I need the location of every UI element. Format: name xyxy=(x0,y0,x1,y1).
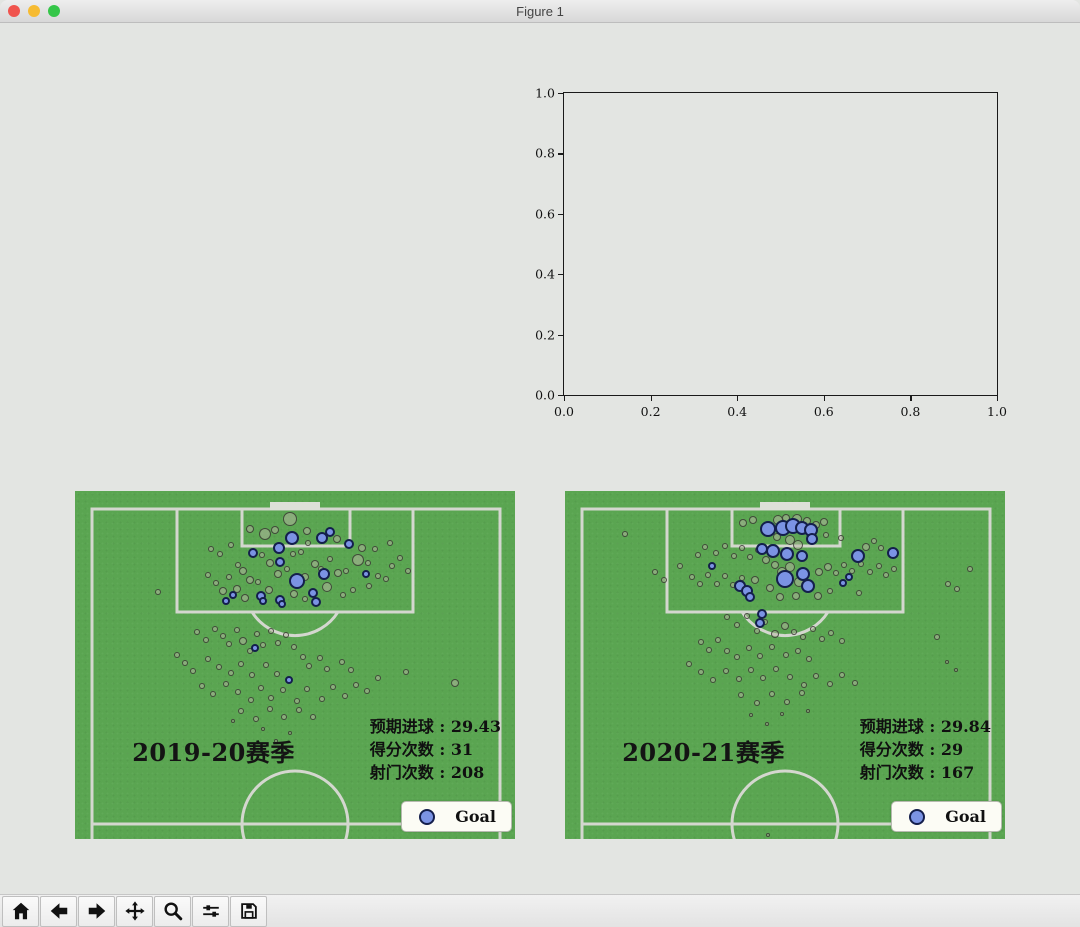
shot-dot-miss xyxy=(722,573,728,579)
shot-dot-miss xyxy=(389,563,395,569)
shot-dot-miss xyxy=(827,681,833,687)
shot-dot-miss xyxy=(254,631,260,637)
shot-dot-miss xyxy=(238,708,244,714)
shot-dot-miss xyxy=(220,633,226,639)
shot-dot-miss xyxy=(852,680,858,686)
shot-dot-miss xyxy=(799,690,805,696)
shot-dot-miss xyxy=(350,587,356,593)
shot-dot-miss xyxy=(871,538,877,544)
x-tick xyxy=(997,396,998,401)
y-tick xyxy=(558,214,563,215)
shot-dot-goal xyxy=(222,597,230,605)
shot-dot-miss xyxy=(736,676,742,682)
shot-dot-goal xyxy=(285,531,299,545)
shot-dot-miss xyxy=(283,512,297,526)
shot-dot-miss xyxy=(862,543,870,551)
shot-dot-goal xyxy=(708,562,716,570)
x-tick xyxy=(737,396,738,401)
stat-shots: 射门次数 : 167 xyxy=(860,761,991,784)
shot-dot-goal xyxy=(259,597,267,605)
shot-dot-miss xyxy=(340,592,346,598)
shot-dot-miss xyxy=(265,586,273,594)
shot-dot-miss xyxy=(199,683,205,689)
shot-dot-miss xyxy=(806,656,812,662)
shot-dot-miss xyxy=(281,714,287,720)
shot-dot-miss xyxy=(722,543,728,549)
stat-goals: 得分次数 : 29 xyxy=(860,738,991,761)
legend-label: Goal xyxy=(945,807,986,826)
shot-dot-miss xyxy=(876,563,882,569)
shot-dot-miss xyxy=(241,594,249,602)
shot-dot-miss xyxy=(383,576,389,582)
shot-dot-miss xyxy=(784,699,790,705)
shot-dot-miss xyxy=(793,540,803,550)
shot-dot-miss xyxy=(339,659,345,665)
y-tick-label: 0.0 xyxy=(535,388,555,403)
shot-dot-goal xyxy=(275,557,285,567)
shot-dot-miss xyxy=(839,672,845,678)
shot-dot-miss xyxy=(856,590,862,596)
shot-dot-miss xyxy=(698,669,704,675)
pan-button[interactable] xyxy=(116,896,153,927)
empty-axes: 0.00.20.40.60.81.00.00.20.40.60.81.0 xyxy=(563,92,998,396)
shot-dot-miss xyxy=(405,568,411,574)
shot-dot-miss xyxy=(731,553,737,559)
shot-dot-miss xyxy=(310,714,316,720)
shot-dot-miss xyxy=(806,709,810,713)
shot-dot-miss xyxy=(706,647,712,653)
shot-dot-miss xyxy=(235,689,241,695)
shot-dot-miss xyxy=(800,634,806,640)
x-tick-label: 0.2 xyxy=(641,404,661,419)
season-label: 2020-21赛季 xyxy=(622,733,785,768)
y-tick-label: 1.0 xyxy=(535,86,555,101)
x-tick xyxy=(651,396,652,401)
shot-dot-miss xyxy=(652,569,658,575)
shot-dot-miss xyxy=(791,629,797,635)
zoom-button[interactable] xyxy=(154,896,191,927)
x-tick-label: 1.0 xyxy=(987,404,1007,419)
shot-dot-miss xyxy=(217,551,223,557)
shot-dot-miss xyxy=(689,574,695,580)
shot-dot-miss xyxy=(751,576,759,584)
shot-dot-miss xyxy=(766,584,774,592)
shot-dot-miss xyxy=(833,570,839,576)
shot-dot-goal xyxy=(766,544,780,558)
shot-dot-miss xyxy=(155,589,161,595)
pan-icon xyxy=(124,900,146,922)
shot-dot-miss xyxy=(766,833,770,837)
shot-dot-miss xyxy=(231,719,235,723)
stats-block: 预期进球 : 29.43 得分次数 : 31 射门次数 : 208 xyxy=(370,715,501,785)
title-bar: Figure 1 xyxy=(0,0,1080,23)
shot-dot-miss xyxy=(304,686,310,692)
shot-dot-miss xyxy=(749,516,757,524)
y-tick-label: 0.8 xyxy=(535,146,555,161)
shot-dot-miss xyxy=(757,653,763,659)
shot-dot-miss xyxy=(686,661,692,667)
shot-dot-miss xyxy=(174,652,180,658)
shot-dot-miss xyxy=(739,519,747,527)
shot-dot-goal xyxy=(325,527,335,537)
shot-dot-goal xyxy=(796,550,808,562)
shot-dot-miss xyxy=(403,669,409,675)
forward-arrow-icon xyxy=(86,900,108,922)
shot-dot-miss xyxy=(748,667,754,673)
shot-dot-miss xyxy=(249,672,255,678)
shot-dot-goal xyxy=(273,542,285,554)
shot-dot-goal xyxy=(362,570,370,578)
shot-dot-miss xyxy=(746,645,752,651)
shot-dot-goal xyxy=(755,618,765,628)
shot-dot-miss xyxy=(776,593,784,601)
shot-dot-miss xyxy=(883,572,889,578)
shot-dot-miss xyxy=(867,569,873,575)
shot-dot-miss xyxy=(724,648,730,654)
shot-dot-goal xyxy=(289,573,305,589)
shot-dot-miss xyxy=(259,528,271,540)
shot-dot-miss xyxy=(364,688,370,694)
legend: Goal xyxy=(401,801,512,832)
shot-dot-miss xyxy=(372,546,378,552)
shot-dot-miss xyxy=(219,587,227,595)
shot-dot-goal xyxy=(285,676,293,684)
shot-dot-miss xyxy=(702,544,708,550)
shot-dot-miss xyxy=(228,670,234,676)
shot-dot-miss xyxy=(210,691,216,697)
shot-dot-goal xyxy=(851,549,865,563)
shot-dot-miss xyxy=(342,693,348,699)
shot-dot-miss xyxy=(710,677,716,683)
shot-dot-miss xyxy=(801,682,807,688)
shot-dot-miss xyxy=(945,660,949,664)
shot-dot-miss xyxy=(322,582,332,592)
shot-dot-miss xyxy=(358,544,366,552)
shot-dot-goal xyxy=(776,570,794,588)
shot-dot-miss xyxy=(253,716,259,722)
shot-dot-miss xyxy=(698,639,704,645)
shot-dot-miss xyxy=(366,583,372,589)
shot-dot-miss xyxy=(769,691,775,697)
shot-dot-miss xyxy=(724,614,730,620)
shot-dot-miss xyxy=(268,695,274,701)
shot-dot-miss xyxy=(213,580,219,586)
shot-dot-miss xyxy=(263,662,269,668)
shot-dot-miss xyxy=(352,554,364,566)
shot-dot-miss xyxy=(283,632,289,638)
shot-dot-miss xyxy=(348,667,354,673)
shot-dot-miss xyxy=(839,638,845,644)
save-button[interactable] xyxy=(230,896,267,927)
shot-dot-miss xyxy=(375,675,381,681)
shot-dot-miss xyxy=(291,644,297,650)
shot-dot-miss xyxy=(754,700,760,706)
shot-dot-miss xyxy=(205,572,211,578)
shot-dot-miss xyxy=(343,568,349,574)
magnifier-icon xyxy=(162,900,184,922)
shot-dot-miss xyxy=(274,671,280,677)
shot-dot-miss xyxy=(781,622,789,630)
shot-dot-miss xyxy=(715,637,721,643)
shot-dot-goal xyxy=(745,592,755,602)
save-icon xyxy=(238,900,260,922)
shot-dot-miss xyxy=(302,596,308,602)
shot-dot-miss xyxy=(268,628,274,634)
shot-dot-miss xyxy=(705,572,711,578)
shot-dot-miss xyxy=(223,681,229,687)
shot-dot-miss xyxy=(967,566,973,572)
shot-dot-miss xyxy=(787,674,793,680)
shot-dot-miss xyxy=(182,660,188,666)
shot-dot-miss xyxy=(330,684,336,690)
shot-dot-goal xyxy=(806,533,818,545)
shot-dot-goal xyxy=(229,591,237,599)
shot-dot-miss xyxy=(934,634,940,640)
shot-dot-miss xyxy=(723,668,729,674)
shot-dot-miss xyxy=(365,560,371,566)
shot-dot-goal xyxy=(251,644,259,652)
forward-button[interactable] xyxy=(78,896,115,927)
shot-dot-miss xyxy=(765,722,769,726)
shot-dot-miss xyxy=(813,673,819,679)
shot-dot-miss xyxy=(810,626,816,632)
shot-dot-miss xyxy=(216,664,222,670)
shot-dot-miss xyxy=(451,679,459,687)
window-title: Figure 1 xyxy=(0,4,1080,19)
x-tick xyxy=(910,396,911,401)
shot-dot-miss xyxy=(306,663,312,669)
shot-dot-miss xyxy=(838,535,844,541)
shot-dot-goal xyxy=(248,548,258,558)
pitch-axes-2020-21: 2020-21赛季 预期进球 : 29.84 得分次数 : 29 射门次数 : … xyxy=(565,491,1005,839)
y-tick-label: 0.2 xyxy=(535,327,555,342)
shot-dot-miss xyxy=(267,706,273,712)
shot-dot-miss xyxy=(275,640,281,646)
x-tick-label: 0.6 xyxy=(814,404,834,419)
shot-dot-miss xyxy=(261,727,265,731)
shot-dot-miss xyxy=(226,641,232,647)
shot-dot-miss xyxy=(792,592,800,600)
shot-dot-miss xyxy=(771,630,779,638)
shot-dot-miss xyxy=(305,540,311,546)
y-tick xyxy=(558,93,563,94)
stat-expected-goals: 预期进球 : 29.43 xyxy=(370,715,501,738)
shot-dot-miss xyxy=(280,687,286,693)
shot-dot-miss xyxy=(327,556,333,562)
shot-dot-miss xyxy=(819,636,825,642)
shot-dot-miss xyxy=(260,642,266,648)
x-tick-label: 0.4 xyxy=(727,404,747,419)
shot-dot-miss xyxy=(795,648,801,654)
sliders-icon xyxy=(200,900,222,922)
shot-dot-goal xyxy=(318,568,330,580)
x-tick xyxy=(824,396,825,401)
shot-dot-miss xyxy=(661,577,667,583)
shot-dot-miss xyxy=(397,555,403,561)
shot-dot-goal xyxy=(760,521,776,537)
shot-dot-miss xyxy=(841,562,847,568)
shot-dot-miss xyxy=(212,626,218,632)
figure-canvas[interactable]: 0.00.20.40.60.81.00.00.20.40.60.81.0 201… xyxy=(0,23,1080,894)
shot-dot-miss xyxy=(298,549,304,555)
shot-dot-miss xyxy=(754,628,760,634)
shot-dot-miss xyxy=(828,630,834,636)
shot-dot-miss xyxy=(284,566,290,572)
shot-dot-miss xyxy=(747,554,753,560)
y-tick xyxy=(558,335,563,336)
shot-dot-miss xyxy=(324,666,330,672)
shot-dot-miss xyxy=(319,696,325,702)
pitch-axes-2019-20: 2019-20赛季 预期进球 : 29.43 得分次数 : 31 射门次数 : … xyxy=(75,491,515,839)
legend-label: Goal xyxy=(455,807,496,826)
shot-dot-miss xyxy=(954,668,958,672)
shot-dot-miss xyxy=(891,566,897,572)
shot-dot-miss xyxy=(783,652,789,658)
shot-dot-miss xyxy=(820,518,828,526)
shot-dot-goal xyxy=(311,597,321,607)
x-tick-label: 0.8 xyxy=(900,404,920,419)
shot-dot-miss xyxy=(239,637,247,645)
shot-dot-miss xyxy=(190,668,196,674)
shot-dot-miss xyxy=(714,581,720,587)
shot-dot-goal xyxy=(801,579,815,593)
x-tick xyxy=(564,396,565,401)
shot-dot-miss xyxy=(255,579,261,585)
home-icon xyxy=(10,900,32,922)
shot-dot-miss xyxy=(734,622,740,628)
shot-dot-miss xyxy=(824,563,832,571)
shot-dot-miss xyxy=(228,542,234,548)
y-tick-label: 0.4 xyxy=(535,267,555,282)
stats-block: 预期进球 : 29.84 得分次数 : 29 射门次数 : 167 xyxy=(860,715,991,785)
shot-dot-miss xyxy=(827,588,833,594)
shot-dot-miss xyxy=(246,576,254,584)
shot-dot-miss xyxy=(238,661,244,667)
shot-dot-miss xyxy=(697,581,703,587)
stat-expected-goals: 预期进球 : 29.84 xyxy=(860,715,991,738)
shot-dot-miss xyxy=(194,629,200,635)
shot-dot-miss xyxy=(246,525,254,533)
shot-dot-miss xyxy=(734,654,740,660)
goal-marker-icon xyxy=(419,809,435,825)
shot-dot-miss xyxy=(248,697,254,703)
y-tick-label: 0.6 xyxy=(535,206,555,221)
shot-dot-miss xyxy=(815,568,823,576)
y-tick xyxy=(558,395,563,396)
shot-dot-miss xyxy=(677,563,683,569)
shot-dot-miss xyxy=(303,527,311,535)
shot-dot-miss xyxy=(203,637,209,643)
figure-window: Figure 1 0.00.20.40.60.81.00.00.20.40.60… xyxy=(0,0,1080,927)
shot-dot-miss xyxy=(226,574,232,580)
shot-dot-miss xyxy=(760,675,766,681)
shot-dot-miss xyxy=(375,573,381,579)
shot-dot-goal xyxy=(887,547,899,559)
season-label: 2019-20赛季 xyxy=(132,733,295,768)
shot-dot-miss xyxy=(713,550,719,556)
shot-dot-miss xyxy=(780,712,784,716)
shot-dot-goal xyxy=(780,547,794,561)
shot-dot-miss xyxy=(258,685,264,691)
shot-dot-miss xyxy=(387,540,393,546)
shot-dot-miss xyxy=(266,559,274,567)
legend: Goal xyxy=(891,801,1002,832)
shot-dot-miss xyxy=(823,532,829,538)
shot-dot-miss xyxy=(769,644,775,650)
shot-dot-miss xyxy=(695,552,701,558)
shot-dot-miss xyxy=(300,654,306,660)
shot-dot-miss xyxy=(334,569,342,577)
shot-dot-miss xyxy=(317,655,323,661)
shot-dot-goal xyxy=(845,573,853,581)
back-button[interactable] xyxy=(40,896,77,927)
stat-goals: 得分次数 : 31 xyxy=(370,738,501,761)
configure-subplots-button[interactable] xyxy=(192,896,229,927)
shot-dot-miss xyxy=(208,546,214,552)
shot-dot-miss xyxy=(239,567,247,575)
shot-dot-miss xyxy=(878,545,884,551)
shot-dot-miss xyxy=(333,535,341,543)
y-tick xyxy=(558,153,563,154)
goal-marker-icon xyxy=(909,809,925,825)
shot-dot-miss xyxy=(274,570,282,578)
shot-dot-miss xyxy=(205,656,211,662)
shot-dot-miss xyxy=(353,682,359,688)
stat-shots: 射门次数 : 208 xyxy=(370,761,501,784)
shot-dot-miss xyxy=(739,545,745,551)
shot-dot-miss xyxy=(234,627,240,633)
shot-dot-miss xyxy=(296,707,302,713)
shot-dot-miss xyxy=(290,551,296,557)
shot-dot-miss xyxy=(954,586,960,592)
shot-dot-miss xyxy=(738,692,744,698)
shots-layer-1 xyxy=(565,491,1005,839)
shot-dot-miss xyxy=(259,552,265,558)
shot-dot-goal xyxy=(344,539,354,549)
shot-dot-miss xyxy=(773,666,779,672)
home-button[interactable] xyxy=(2,896,39,927)
shot-dot-miss xyxy=(290,590,298,598)
matplotlib-toolbar xyxy=(0,894,1080,927)
shot-dot-miss xyxy=(749,713,753,717)
shots-layer-0 xyxy=(75,491,515,839)
shot-dot-miss xyxy=(945,581,951,587)
shot-dot-miss xyxy=(814,592,822,600)
shot-dot-goal xyxy=(278,600,286,608)
shot-dot-miss xyxy=(271,526,279,534)
back-arrow-icon xyxy=(48,900,70,922)
x-tick-label: 0.0 xyxy=(554,404,574,419)
shot-dot-miss xyxy=(744,613,750,619)
shot-dot-miss xyxy=(762,556,770,564)
shot-dot-miss xyxy=(622,531,628,537)
shot-dot-miss xyxy=(294,698,300,704)
y-tick xyxy=(558,274,563,275)
